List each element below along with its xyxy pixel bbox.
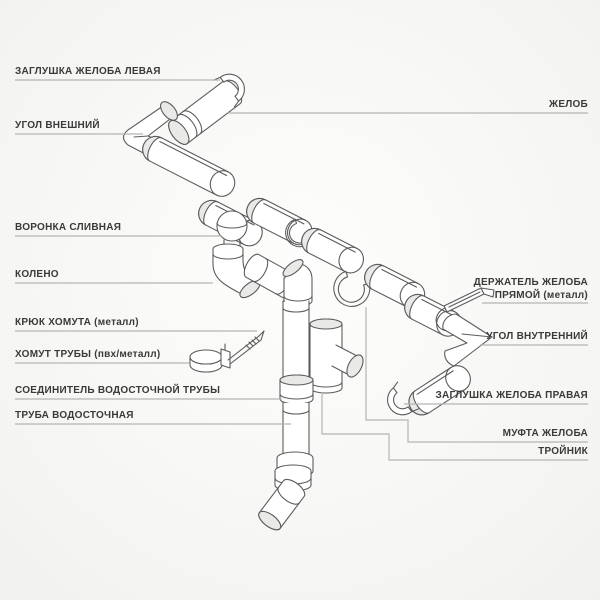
label-gutter-end-cap-right: ЗАГЛУШКА ЖЕЛОБА ПРАВАЯ — [436, 389, 588, 403]
label-downpipe: ТРУБА ВОДОСТОЧНАЯ — [15, 409, 134, 423]
downpipe-lower-drawing — [283, 402, 309, 456]
label-inner-corner: УГОЛ ВНУТРЕННИЙ — [486, 330, 588, 344]
label-drain-funnel: ВОРОНКА СЛИВНАЯ — [15, 221, 121, 235]
downpipe-upper-drawing — [283, 301, 309, 378]
label-outer-corner: УГОЛ ВНЕШНИЙ — [15, 119, 100, 133]
label-gutter-bracket-line1: ДЕРЖАТЕЛЬ ЖЕЛОБА — [474, 276, 588, 289]
label-gutter-coupling: МУФТА ЖЕЛОБА — [503, 427, 588, 441]
label-gutter-end-cap-left: ЗАГЛУШКА ЖЕЛОБА ЛЕВАЯ — [15, 65, 161, 79]
inner-corner-drawing — [443, 314, 492, 366]
label-downpipe-connector: СОЕДИНИТЕЛЬ ВОДОСТОЧНОЙ ТРУБЫ — [15, 384, 220, 398]
tee-drawing — [310, 319, 366, 393]
label-pipe-clamp: ХОМУТ ТРУБЫ (пвх/металл) — [15, 348, 160, 362]
label-gutter: ЖЕЛОБ — [549, 98, 588, 112]
label-tee: ТРОЙНИК — [538, 445, 588, 459]
label-gutter-bracket-straight: ДЕРЖАТЕЛЬ ЖЕЛОБА ПРЯМОЙ (металл) — [474, 276, 588, 302]
label-elbow: КОЛЕНО — [15, 268, 59, 282]
pipe-clamp-drawing — [190, 344, 230, 372]
elbow-drawing — [280, 257, 312, 306]
gutter-system-diagram: ЗАГЛУШКА ЖЕЛОБА ЛЕВАЯ УГОЛ ВНЕШНИЙ ВОРОН… — [0, 0, 600, 600]
downpipe-connector-drawing — [280, 375, 313, 404]
clamp-hook-drawing — [228, 331, 264, 364]
label-clamp-hook: КРЮК ХОМУТА (металл) — [15, 316, 139, 330]
label-gutter-bracket-line2: ПРЯМОЙ (металл) — [474, 289, 588, 302]
